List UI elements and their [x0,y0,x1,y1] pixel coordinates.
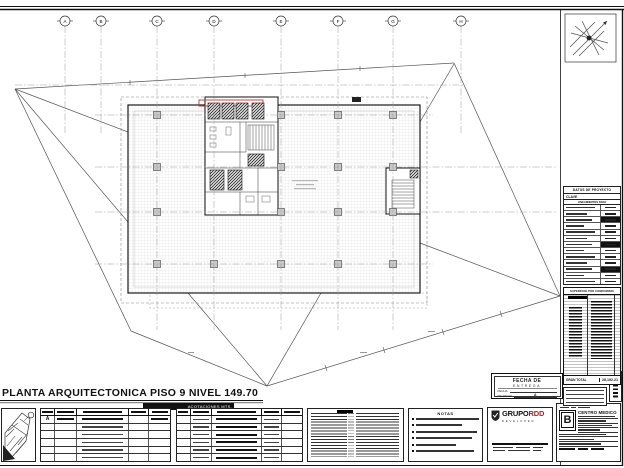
header-cell [55,409,77,415]
revision-row [177,447,302,455]
svg-text:F: F [337,19,340,24]
project-title-block: B CENTRO MEDICO [556,403,621,462]
legend-column [348,413,353,457]
sheet-revision-cell: B [559,410,576,431]
plan-title: PLANTA ARQUITECTONICA PISO 9 NIVEL 149.7… [2,387,312,399]
location-sketch-icon [2,409,35,461]
grand-total-row: GRAN TOTAL 28,192.21 [564,375,620,384]
grid-bubble: C [149,16,165,26]
header-cell [41,409,55,415]
svg-text:E: E [279,19,282,24]
revision-row: A [41,416,170,424]
header-cell [77,409,129,415]
grid-bubble: A [57,16,73,26]
grand-total-value: 28,192.21 [599,378,620,382]
grid-bubble: G [385,16,401,26]
revision-row [41,431,170,439]
company-shield-icon [491,410,500,421]
svg-text:B: B [99,19,102,24]
divider-bar [492,443,548,445]
symbol-legend [307,408,404,462]
delivery-date-box: FECHA DE ENTREGA FECHA REVISION A [491,373,563,399]
note-line [566,390,604,391]
note-line [566,398,604,399]
company-name: GRUPO [502,409,529,418]
revision-row [177,424,302,432]
legend-column [311,413,347,457]
grid-bubbles: A B C D E [57,16,469,26]
grid-bubble: B [93,16,109,26]
note-line [566,394,604,395]
data-row [564,279,620,284]
building-core [199,97,278,215]
header-cell [149,409,170,415]
area-values-column [591,301,612,359]
revision-table-header [41,409,170,416]
revision-row [41,454,170,461]
revision-table-header [177,409,302,416]
project-data-table: DATOS DE PROYECTO CLAVE LINEAMIENTOS PAR… [563,186,621,285]
revision-row [177,439,302,447]
revision-value: A [514,393,557,398]
revision-table-2 [176,408,303,462]
area-summary-table: SUPERFICIE POR CONDOMINIO GRAN TOTAL 28,… [563,287,621,385]
note-line [566,402,604,403]
svg-text:G: G [391,19,395,24]
core-stair [248,125,274,150]
revision-table-1: A [40,408,171,462]
revision-row [177,416,302,424]
company-title-block: GRUPORDD DEVELOPER [487,407,553,462]
location-sketch [1,408,36,462]
area-table-title: SUPERFICIE POR CONDOMINIO [564,288,620,295]
company-tagline: DEVELOPER [502,419,544,423]
svg-text:A: A [63,19,66,24]
grid-bubble: D [206,16,222,26]
revision-row [41,447,170,455]
notes-lines [412,416,479,455]
note-line [412,448,479,455]
revision-row [41,439,170,447]
project-data-title: DATOS DE PROYECTO [564,187,620,194]
sheet-revision-letter: B [564,415,572,426]
grid-bubble: F [330,16,346,26]
grid-bubble: E [273,16,289,26]
revision-row [177,431,302,439]
revision-row [41,424,170,432]
revision-row [177,454,302,461]
revision-letter: A [46,416,50,422]
company-accent: RDD [529,409,545,418]
header-cell [129,409,150,415]
legend-column [356,413,400,457]
north-arrow-icon [565,14,616,62]
small-note-box [563,387,607,406]
svg-text:H: H [459,19,462,24]
stair-core [386,168,420,214]
grand-total-label: GRAN TOTAL [564,378,599,382]
drawing-sheet: A B C D E [0,0,624,468]
notes-box: NOTAS [408,408,483,462]
area-values-column [569,307,582,357]
grid-bubble: H [453,16,469,26]
revision-label: REVISION [498,394,512,398]
